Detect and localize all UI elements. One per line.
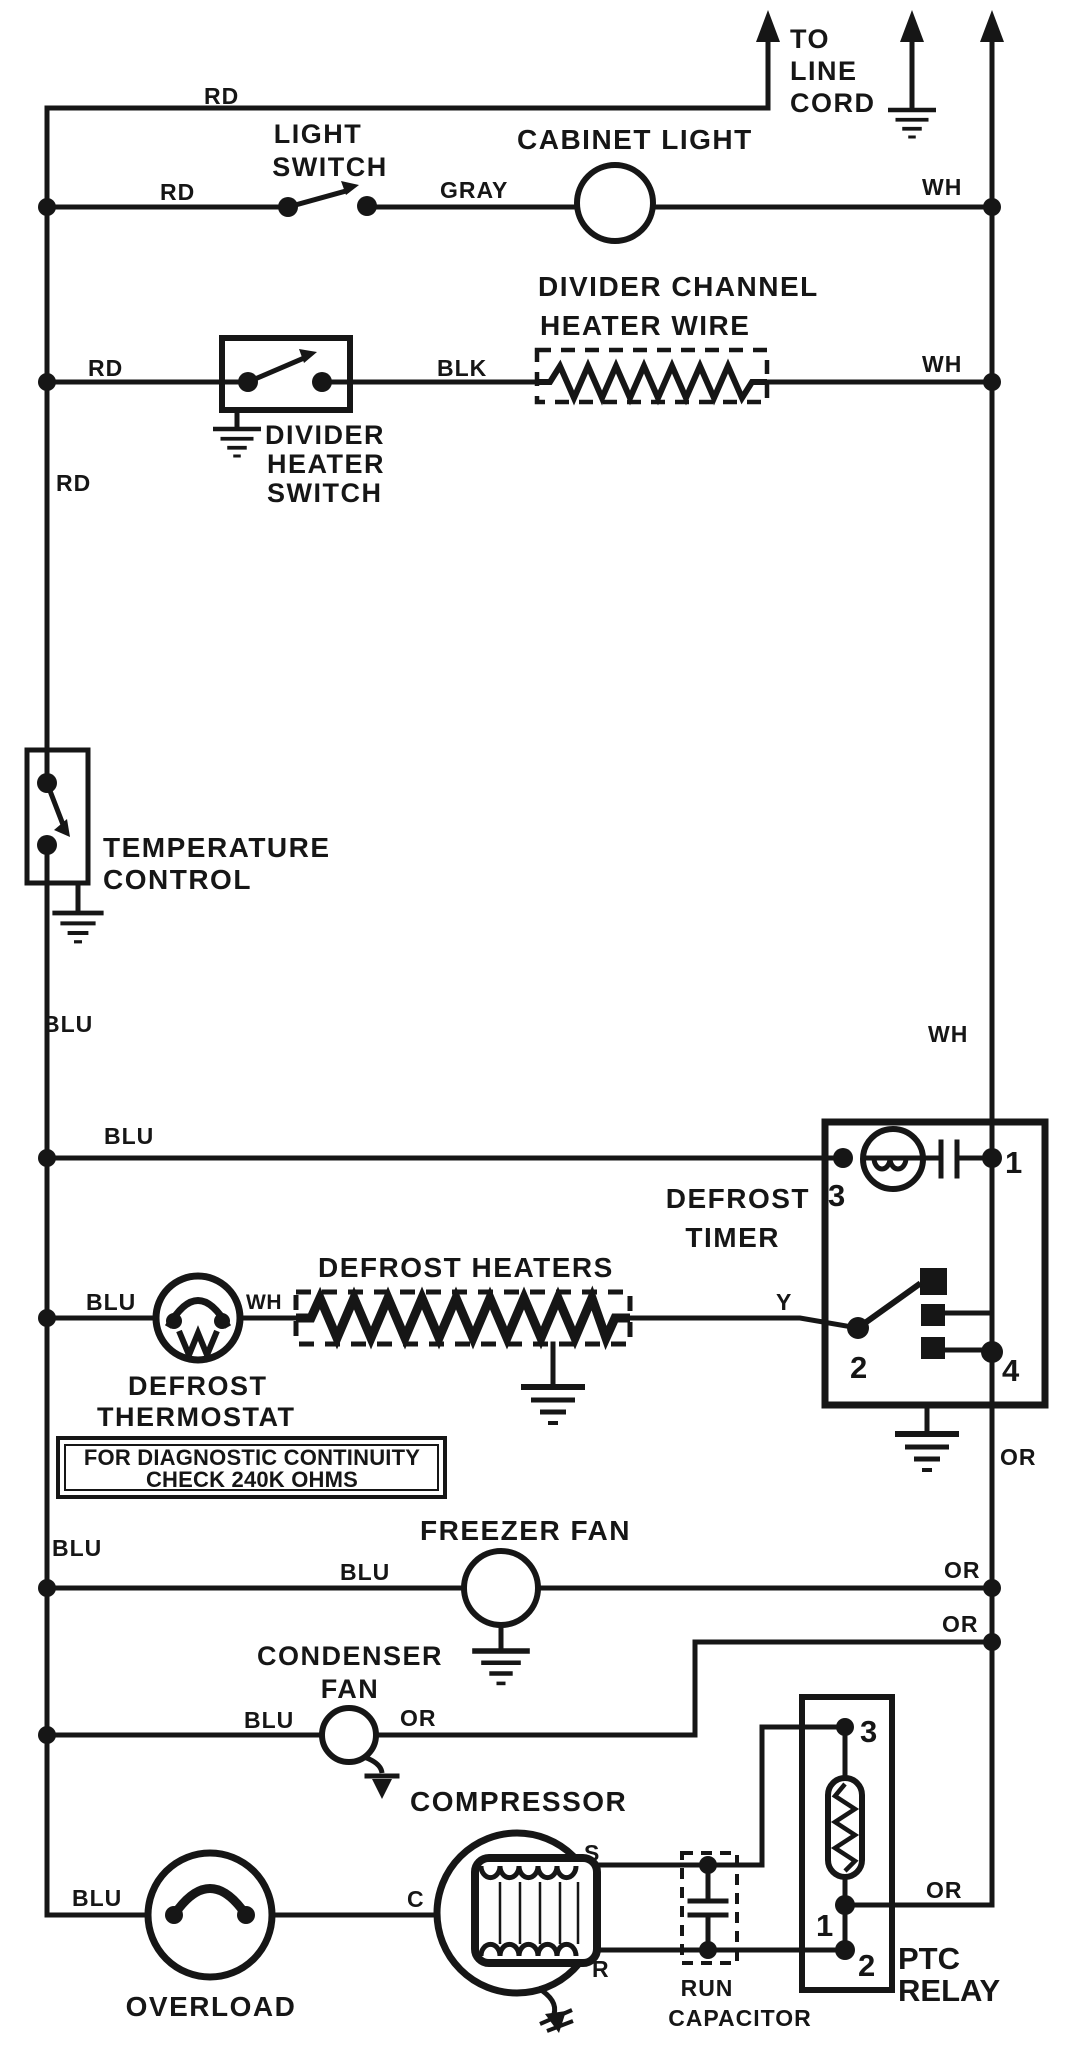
defrost-timer-label: DEFROST (666, 1183, 810, 1214)
defrost-thermostat-label: DEFROST (128, 1371, 268, 1401)
timer-terminal-4 (981, 1341, 1003, 1363)
light-switch-label: SWITCH (272, 152, 387, 182)
switch-contact (37, 773, 57, 793)
ptc-terminal-label: 1 (816, 1908, 833, 1943)
divider-switch-label: SWITCH (267, 478, 382, 508)
wire-label-rd: RD (88, 355, 123, 381)
wire-label-blu: BLU (72, 1885, 122, 1911)
compressor-terminal-label: R (592, 1956, 610, 1982)
freezer-fan-motor-icon (464, 1551, 538, 1625)
heater-element-icon (296, 1298, 630, 1338)
wire-label-gray: GRAY (440, 177, 508, 203)
wire-label-wh: WH (922, 174, 962, 200)
junction-dot (699, 1941, 717, 1959)
switch-contact (37, 835, 57, 855)
ground-stem (364, 1757, 382, 1773)
ground-icon (895, 1434, 959, 1470)
wire-label-blu: BLU (104, 1123, 154, 1149)
wire-label-blu: BLU (244, 1707, 294, 1733)
wire-label-or: OR (1000, 1444, 1037, 1470)
divider-switch-label: DIVIDER (265, 420, 385, 450)
overload-label: OVERLOAD (126, 1991, 297, 2022)
junction-dot (38, 1579, 56, 1597)
defrost-thermostat-label: THERMOSTAT (97, 1402, 295, 1432)
timer-terminal-label: 1 (1005, 1145, 1022, 1180)
overload-contact (237, 1906, 255, 1924)
ground-arrow-icon (900, 10, 924, 42)
ptc-relay-label: RELAY (898, 1973, 1001, 2008)
timer-contact-pad (921, 1337, 945, 1359)
divider-heater-switch: DIVIDER HEATER SWITCH (213, 338, 385, 508)
ground-icon (888, 110, 936, 137)
wire-label-rd: RD (56, 470, 91, 496)
condenser-fan-label: FAN (321, 1674, 380, 1704)
divider-switch-label: HEATER (267, 449, 385, 479)
wire-label-blu: BLU (52, 1535, 102, 1561)
run-capacitor-label: CAPACITOR (668, 2005, 812, 2031)
timer-contact-pad (920, 1268, 947, 1295)
to-line-cord-label: LINE (790, 56, 858, 86)
defrost-timer-label: TIMER (685, 1222, 780, 1253)
timer-contact-pad (921, 1304, 945, 1326)
wire-label-or: OR (400, 1705, 437, 1731)
junction-dot (983, 373, 1001, 391)
schematic-canvas: TO LINE CORD LIGHT SWITCH CABINET LIGHT … (0, 0, 1076, 2071)
wire-label-or: OR (926, 1877, 963, 1903)
condenser-fan-label: CONDENSER (257, 1641, 443, 1671)
timer-capacitor-icon (941, 1142, 957, 1176)
cabinet-light-bulb-icon (577, 165, 653, 241)
compressor-terminal-label: C (407, 1886, 425, 1912)
wiring-diagram: TO LINE CORD LIGHT SWITCH CABINET LIGHT … (0, 0, 1076, 2071)
compressor-terminal-label: S (584, 1840, 600, 1866)
compressor-label: COMPRESSOR (410, 1786, 627, 1817)
ground-icon (213, 429, 261, 456)
thermostat-contact (166, 1313, 182, 1329)
cabinet-light: CABINET LIGHT (517, 124, 753, 241)
top-rd-wire (47, 30, 768, 108)
junction-dot (38, 1149, 56, 1167)
divider-channel-label: HEATER WIRE (540, 310, 750, 341)
compressor: COMPRESSOR S C R (407, 1786, 627, 2033)
timer-terminal-3 (833, 1148, 853, 1168)
overload: OVERLOAD (126, 1853, 297, 2022)
ground-stem (538, 1988, 555, 2014)
timer-terminal-2 (847, 1317, 869, 1339)
wire-label-rd: RD (204, 83, 239, 109)
ptc-terminal-1 (835, 1895, 855, 1915)
wire-label-wh: WH (928, 1021, 968, 1047)
junction-dot (38, 1309, 56, 1327)
ptc-terminal-3 (836, 1718, 854, 1736)
ptc-terminal-label: 2 (858, 1948, 875, 1983)
diagnostic-note: FOR DIAGNOSTIC CONTINUITY CHECK 240K OHM… (58, 1438, 445, 1497)
junction-dot (38, 1726, 56, 1744)
junction-dots (38, 198, 1001, 1744)
thermostat-contact (214, 1313, 230, 1329)
wire-label-rd: RD (160, 179, 195, 205)
wire-label-blk: BLK (437, 355, 487, 381)
run-capacitor: RUN CAPACITOR (668, 1853, 812, 2031)
switch-contact (357, 196, 377, 216)
switch-contact (312, 372, 332, 392)
line-cord-arrow-icon (756, 10, 780, 42)
right-wire-arrow-icon (980, 10, 1004, 42)
temperature-control-label: TEMPERATURE (103, 832, 331, 863)
ptc-terminal-2 (835, 1940, 855, 1960)
wire-label-wh: WH (246, 1291, 282, 1314)
timer-switch-blade (858, 1285, 918, 1328)
wire-label-or: OR (942, 1611, 979, 1637)
junction-dot (38, 198, 56, 216)
defrost-heaters-label: DEFROST HEATERS (318, 1252, 614, 1283)
wire-label-blu: BLU (43, 1011, 93, 1037)
freezer-fan: FREEZER FAN (420, 1515, 631, 1683)
wire-label-blu: BLU (340, 1559, 390, 1585)
freezer-fan-label: FREEZER FAN (420, 1515, 631, 1546)
wire-label-wh: WH (922, 351, 962, 377)
timer-terminal-label: 3 (828, 1178, 845, 1213)
light-switch-label: LIGHT (274, 119, 363, 149)
condenser-fan-motor-icon (322, 1708, 376, 1762)
timer-terminal-label: 2 (850, 1350, 867, 1385)
diagnostic-note-text: CHECK 240K OHMS (146, 1467, 358, 1492)
ptc-relay: 3 1 2 PTC RELAY (802, 1697, 1001, 2008)
to-line-cord-label: TO (790, 24, 830, 54)
ground-icon (472, 1651, 530, 1683)
cabinet-light-label: CABINET LIGHT (517, 124, 753, 155)
to-line-cord-label: CORD (790, 88, 876, 118)
run-capacitor-label: RUN (681, 1975, 734, 2001)
ground-icon (52, 913, 103, 942)
wire-color-labels: RD RD GRAY WH RD BLK WH RD BLU WH BLU BL… (43, 83, 1037, 1911)
junction-dot (983, 198, 1001, 216)
defrost-heaters: DEFROST HEATERS (296, 1252, 630, 1423)
temperature-control-label: CONTROL (103, 864, 252, 895)
ptc-relay-label: PTC (898, 1941, 960, 1976)
overload-contact (165, 1906, 183, 1924)
heater-element-icon (537, 366, 767, 398)
line-cord-terminals: TO LINE CORD (756, 10, 1004, 137)
divider-channel-label: DIVIDER CHANNEL (538, 271, 819, 302)
ground-arrow-icon (372, 1779, 392, 1799)
junction-dot (699, 1856, 717, 1874)
ground-icon (521, 1387, 585, 1423)
wire-label-or: OR (944, 1557, 981, 1583)
temperature-control: TEMPERATURE CONTROL (27, 750, 331, 942)
defrost-timer: 3 1 2 4 DEFROST TIMER (666, 1122, 1045, 1470)
wire-label-blu: BLU (86, 1289, 136, 1315)
light-switch: LIGHT SWITCH (272, 119, 387, 217)
junction-dot (983, 1579, 1001, 1597)
divider-switch-box (222, 338, 350, 410)
timer-terminal-label: 4 (1002, 1353, 1020, 1388)
ptc-terminal-label: 3 (860, 1714, 877, 1749)
switch-contact (278, 197, 298, 217)
capacitor-plates-icon (690, 1901, 726, 1915)
timer-terminal-1 (982, 1148, 1002, 1168)
wire-label-y: Y (776, 1289, 792, 1315)
junction-dot (38, 373, 56, 391)
junction-dot (983, 1633, 1001, 1651)
switch-contact (238, 372, 258, 392)
